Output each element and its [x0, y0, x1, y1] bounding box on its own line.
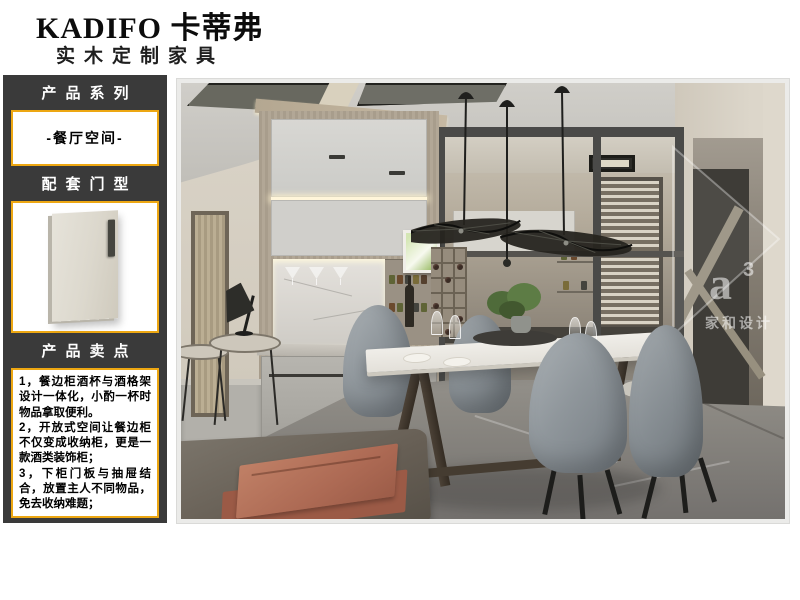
door-panel-image — [52, 210, 118, 321]
spice-jar — [397, 303, 403, 312]
plant-pot — [511, 316, 531, 333]
watermark-company-name: 家和设计 — [705, 313, 773, 333]
glass-door — [191, 211, 229, 417]
cabinet-handle — [329, 155, 345, 159]
dining-room-photo: a 3 家和设计 — [181, 83, 785, 519]
selling-point-1: 1，餐边柜酒杯与酒格架设计一体化，小酌一杯时物品拿取便利。 — [19, 375, 151, 421]
wine-glass-on-table — [449, 315, 461, 339]
lamp-canopy — [554, 86, 570, 93]
spice-jar — [389, 275, 395, 284]
watermark-logo: a — [709, 261, 732, 307]
marble-vein — [284, 279, 352, 297]
lamp-canopy — [499, 100, 515, 107]
brand-tagline: 实木定制家具 — [56, 41, 224, 68]
vertigo-lamp-shade — [411, 214, 522, 248]
sideboard-upper-doors — [271, 119, 427, 197]
lamp-canopy — [458, 92, 474, 99]
wine-glass-stem — [340, 279, 341, 285]
spice-jar — [397, 275, 403, 284]
door-sample-box — [11, 201, 159, 333]
wine-bottle-tip — [433, 303, 439, 309]
door-handle — [108, 219, 115, 256]
pendant-lamps — [411, 83, 661, 293]
lamp-bulb — [503, 259, 511, 267]
vertigo-lamp-shade — [499, 225, 633, 260]
wine-glass-stem — [316, 279, 317, 285]
selling-point-3: 3，下柜门板与抽屉结合，放置主人不同物品，免去收纳难题； — [19, 467, 151, 513]
watermark-logo-sup: 3 — [743, 259, 754, 282]
cabinet-handle — [389, 171, 405, 175]
wine-glass-stem — [292, 279, 293, 285]
selling-section-title: 产品卖点 — [3, 342, 167, 362]
wine-glass-on-table — [431, 311, 443, 335]
nesting-side-table-big — [209, 333, 281, 353]
spice-jar — [421, 303, 427, 312]
table-lamp-base — [235, 331, 253, 336]
series-value-box: -餐厅空间- — [11, 110, 159, 166]
door-section-title: 配套门型 — [3, 175, 167, 195]
selling-points-box: 1，餐边柜酒杯与酒格架设计一体化，小酌一杯时物品拿取便利。 2，开放式空间让餐边… — [11, 368, 159, 518]
product-info-panel: 产品系列 -餐厅空间- 配套门型 产品卖点 1，餐边柜酒杯与酒格架设计一体化，小… — [3, 75, 167, 523]
series-section-title: 产品系列 — [3, 84, 167, 104]
selling-point-2: 2，开放式空间让餐边柜不仅变成收纳柜，更是一款酒类装饰柜； — [19, 421, 151, 467]
